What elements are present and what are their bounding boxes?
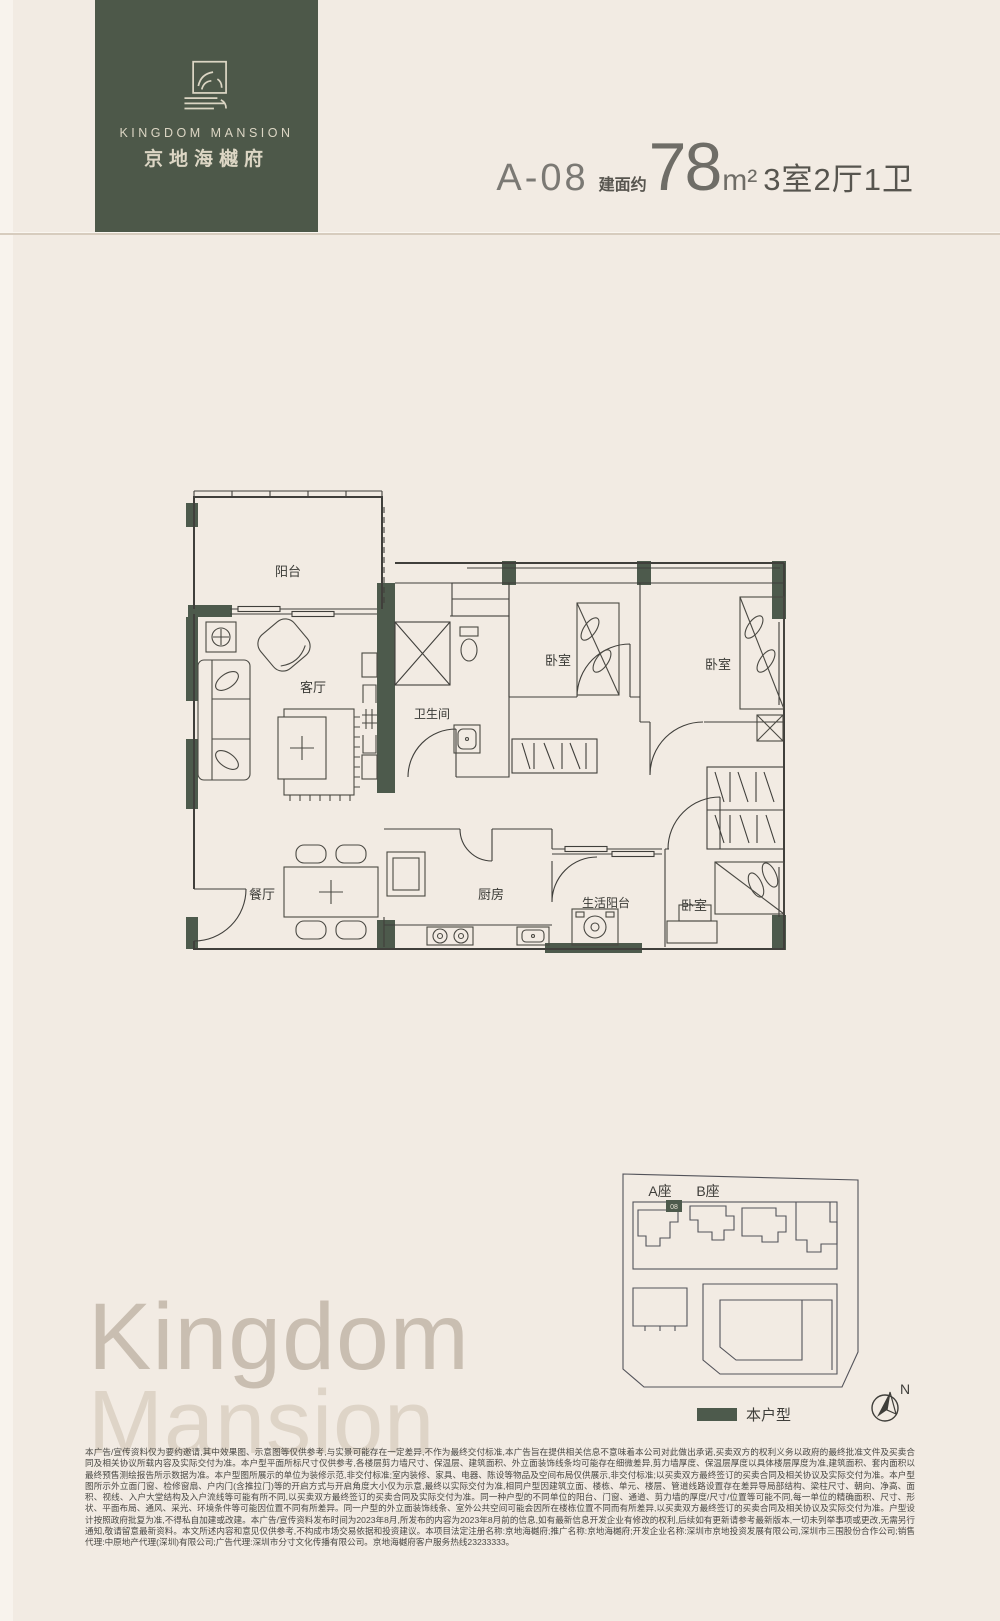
room-label-bedroom1: 卧室	[545, 653, 571, 668]
dining-table	[284, 845, 378, 939]
unit-title: A-08 建面约 78 m² 3室2厅1卫	[496, 128, 914, 206]
bed-1	[577, 603, 619, 695]
brand-name-cn: 京地海樾府	[144, 144, 269, 171]
legend-swatch	[697, 1408, 737, 1421]
bathroom-sink	[454, 725, 480, 753]
toilet	[460, 627, 478, 661]
area-label: 建面约	[599, 171, 647, 195]
tower-a-label: A座	[648, 1183, 671, 1199]
room-layout: 3室2厅1卫	[763, 154, 914, 199]
header-divider	[0, 232, 1000, 235]
room-label-bedroom2: 卧室	[705, 657, 731, 672]
coffee-table-rug	[278, 709, 360, 801]
side-table	[206, 622, 236, 652]
armchair	[253, 614, 315, 676]
unit-highlight-label: 08	[670, 1204, 678, 1211]
compass-north-label: N	[900, 1381, 910, 1397]
area-value: 78	[649, 128, 721, 206]
poster-page: KINGDOM MANSION 京地海樾府 A-08 建面约 78 m² 3室2…	[0, 0, 1000, 1621]
site-boundary	[623, 1174, 858, 1387]
room-label-living: 客厅	[300, 680, 326, 695]
disclaimer-text: 本广告/宣传资料仅为要约邀请,其中效果图、示意图等仅供参考,与实景可能存在一定差…	[85, 1447, 915, 1549]
room-label-bathroom: 卫生间	[414, 707, 450, 721]
site-buildings	[633, 1202, 837, 1374]
legend: 本户型	[697, 1404, 791, 1425]
tv-cabinet	[362, 653, 377, 779]
room-label-kitchen: 厨房	[478, 887, 504, 902]
floor-plan: 阳台 客厅 卫生间 卧室 卧室 餐厅 厨房 生活阳台 卧室	[172, 477, 792, 962]
sofa	[198, 660, 250, 780]
area-unit: m²	[722, 164, 757, 198]
room-label-service-balcony: 生活阳台	[582, 895, 630, 910]
brand-name-en: KINGDOM MANSION	[119, 126, 293, 140]
tower-b-label: B座	[696, 1183, 719, 1199]
washing-machine	[572, 909, 618, 945]
unit-number: A-08	[496, 157, 588, 200]
room-label-balcony: 阳台	[275, 564, 301, 579]
room-label-dining: 餐厅	[249, 887, 275, 902]
room-label-bedroom3: 卧室	[681, 898, 707, 913]
legend-label: 本户型	[746, 1404, 791, 1425]
brand-logo: KINGDOM MANSION 京地海樾府	[95, 0, 318, 232]
brand-logo-icon	[181, 60, 233, 112]
compass: N	[860, 1378, 916, 1430]
kitchen-appliances	[387, 852, 549, 945]
page-edge-strip	[0, 0, 13, 1621]
site-plan: 08 A座 B座	[590, 1126, 910, 1398]
